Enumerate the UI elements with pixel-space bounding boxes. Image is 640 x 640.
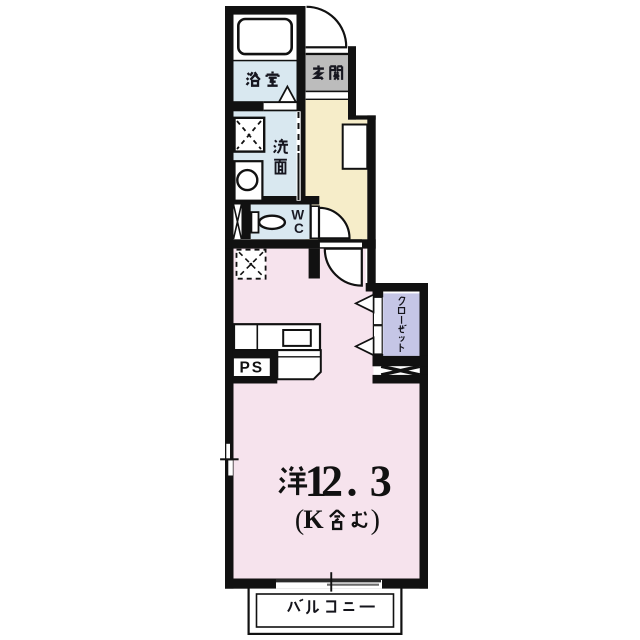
svg-text:): )	[371, 505, 380, 536]
svg-text:C: C	[294, 221, 304, 236]
svg-text:3: 3	[370, 457, 392, 506]
svg-text:.: .	[347, 457, 358, 506]
svg-text:K: K	[303, 505, 324, 534]
svg-text:2: 2	[321, 457, 343, 506]
svg-text:PS: PS	[239, 360, 264, 377]
